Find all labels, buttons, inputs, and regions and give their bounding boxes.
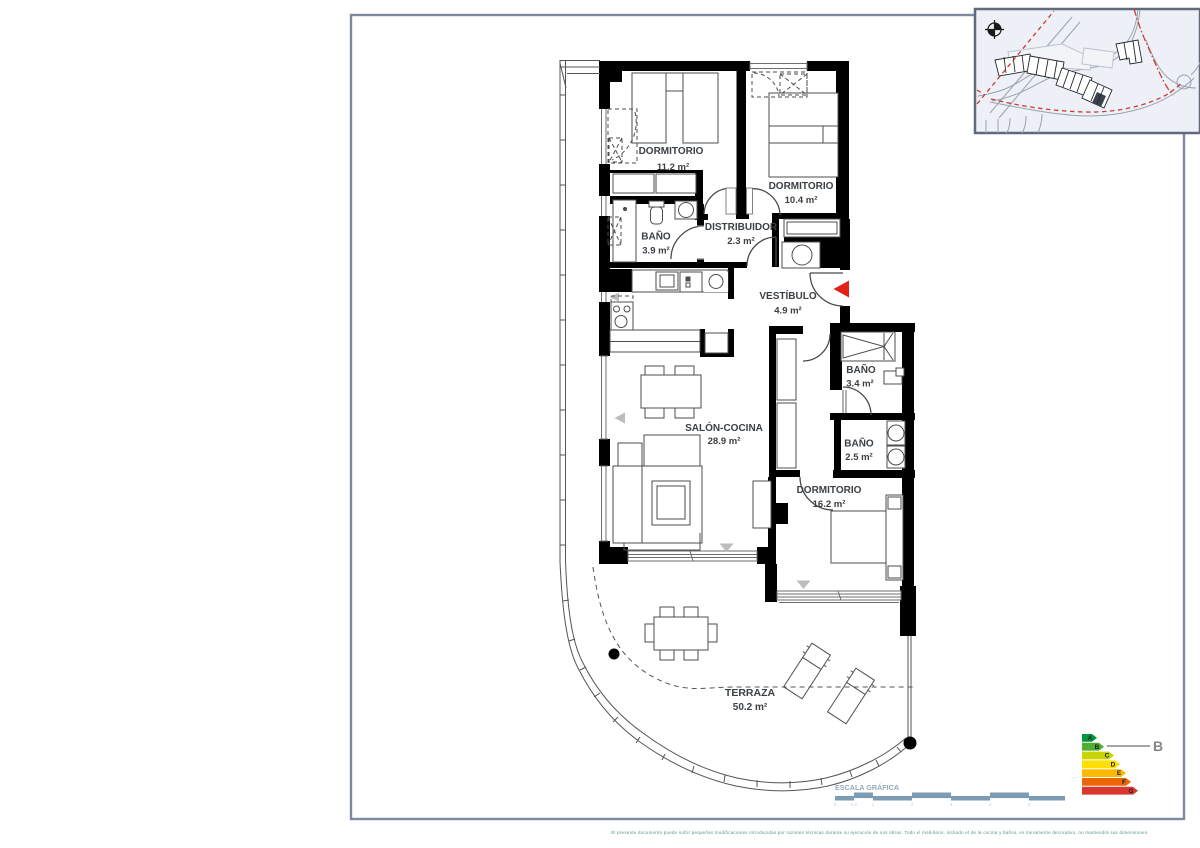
svg-text:2.5 m²: 2.5 m²: [845, 452, 872, 463]
svg-text:11.2 m²: 11.2 m²: [657, 162, 689, 173]
svg-text:C: C: [1105, 753, 1110, 760]
svg-text:VESTÍBULO: VESTÍBULO: [759, 289, 816, 302]
svg-text:0,5: 0,5: [851, 802, 858, 807]
svg-text:50.2 m²: 50.2 m²: [733, 702, 768, 713]
svg-text:F: F: [1122, 779, 1126, 786]
svg-text:28.9 m²: 28.9 m²: [708, 436, 741, 447]
svg-text:DISTRIBUIDOR: DISTRIBUIDOR: [705, 222, 778, 233]
svg-text:DORMITORIO: DORMITORIO: [769, 181, 834, 192]
svg-text:16.2 m²: 16.2 m²: [813, 499, 846, 510]
svg-text:B: B: [1095, 744, 1100, 751]
svg-text:B: B: [1153, 738, 1163, 754]
svg-text:DORMITORIO: DORMITORIO: [797, 485, 862, 496]
svg-text:TERRAZA: TERRAZA: [725, 687, 776, 699]
svg-text:D: D: [1111, 761, 1116, 768]
svg-text:DORMITORIO: DORMITORIO: [639, 146, 704, 157]
svg-text:G: G: [1128, 788, 1133, 795]
svg-text:3.9 m²: 3.9 m²: [642, 246, 669, 257]
svg-text:3.4 m²: 3.4 m²: [846, 379, 873, 390]
svg-text:BAÑO: BAÑO: [641, 230, 671, 243]
svg-text:2.3 m²: 2.3 m²: [727, 236, 754, 247]
svg-text:BAÑO: BAÑO: [844, 437, 874, 450]
svg-text:El presente documento puede su: El presente documento puede sufrir peque…: [611, 830, 1149, 835]
svg-text:10.4 m²: 10.4 m²: [785, 195, 818, 206]
svg-text:BAÑO: BAÑO: [846, 363, 876, 376]
svg-text:4.9 m²: 4.9 m²: [774, 306, 801, 317]
svg-text:A: A: [1088, 735, 1093, 742]
svg-text:SALÓN-COCINA: SALÓN-COCINA: [685, 421, 763, 434]
svg-text:ESCALA GRÁFICA: ESCALA GRÁFICA: [835, 783, 899, 792]
svg-text:E: E: [1117, 770, 1122, 777]
